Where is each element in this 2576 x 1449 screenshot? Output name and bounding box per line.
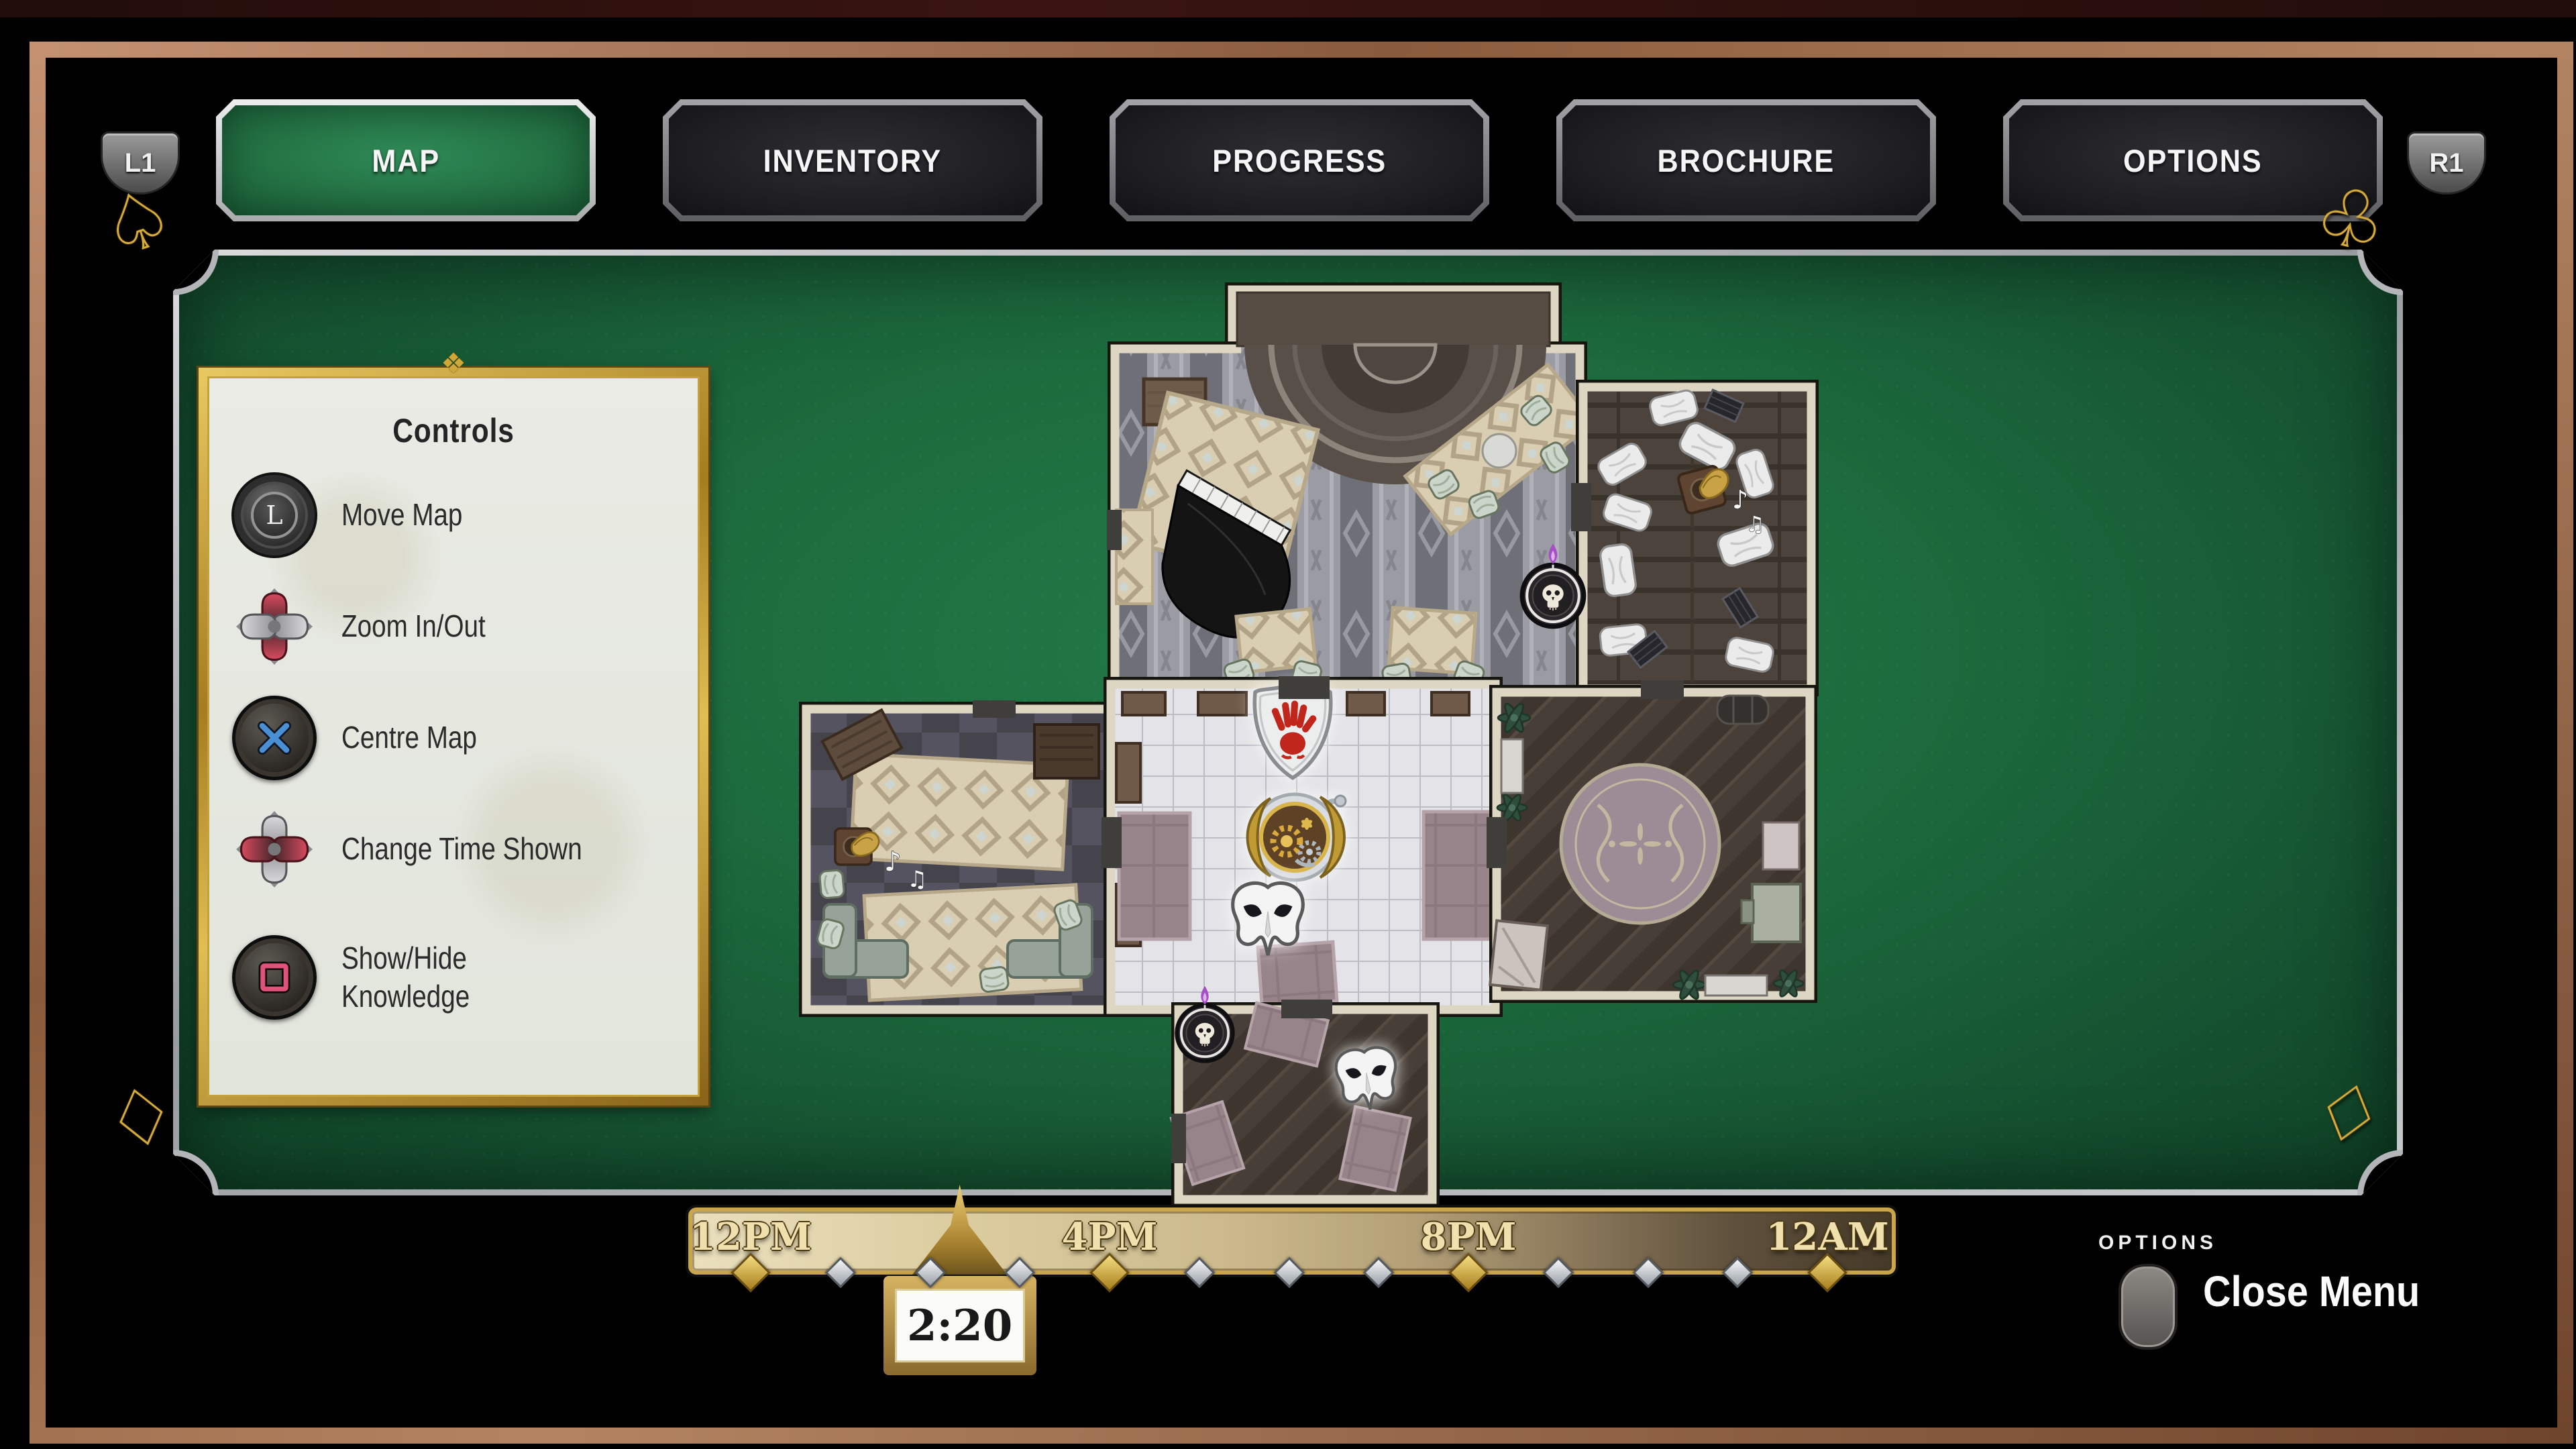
round-rug: [1561, 765, 1719, 923]
side-table: [1763, 822, 1799, 869]
round-table: [1483, 434, 1516, 468]
music-note-icon: ♫: [1746, 511, 1765, 537]
options-button-icon[interactable]: [2118, 1264, 2178, 1350]
tab-brochure-plate: BROCHURE: [1562, 105, 1930, 215]
square-button-icon: [232, 935, 317, 1020]
ballroom-rug-left: [1116, 510, 1152, 604]
scene-top-strip: [0, 0, 2576, 17]
dpad-up-down-icon: [235, 588, 313, 665]
tab-brochure[interactable]: BROCHURE: [1556, 99, 1936, 221]
tab-map-label: MAP: [372, 142, 440, 179]
left-stick-icon: L: [231, 472, 317, 558]
options-button-label: OPTIONS: [2098, 1232, 2192, 1254]
control-label: Zoom In/Out: [341, 607, 606, 646]
current-time-value: 2:20: [907, 1301, 1012, 1351]
lounge-table: [1034, 724, 1099, 778]
room-storage: ♪ ♫: [1583, 387, 1811, 689]
room-central-hall: [1111, 684, 1495, 1010]
room-left-lounge: ♪ ♫: [806, 709, 1110, 1010]
table: [1490, 920, 1548, 989]
barrel: [1717, 696, 1768, 724]
cross-button-icon: [232, 696, 317, 780]
control-row-move-map: L Move Map: [207, 465, 700, 566]
tab-map[interactable]: MAP: [216, 99, 596, 221]
tab-brochure-label: BROCHURE: [1658, 142, 1835, 179]
shoulder-button-r1[interactable]: R1: [2407, 131, 2486, 195]
control-row-knowledge: Show/Hide Knowledge: [207, 910, 700, 1044]
bench: [1501, 739, 1523, 793]
panel-corner-cut: [133, 1156, 213, 1235]
room-round-rug: [1490, 692, 1810, 1001]
music-note-icon: ♪: [884, 847, 902, 877]
mauve-rug: [1424, 812, 1493, 939]
tab-progress-plate: PROGRESS: [1116, 105, 1483, 215]
music-note-icon: ♪: [1732, 485, 1748, 515]
pocket-watch-icon: [1247, 794, 1346, 880]
mauve-rug: [1119, 813, 1190, 939]
tab-map-plate: MAP: [222, 105, 590, 215]
shoulder-r1-label: R1: [2429, 148, 2463, 178]
map-viewport[interactable]: ♪ ♫ ♪ ♫: [771, 282, 1851, 1234]
control-row-zoom: Zoom In/Out: [207, 576, 700, 677]
tab-bar: MAP INVENTORY PROGRESS BROCHURE OPTIONS: [216, 99, 2384, 221]
diamond-ornament-icon: ♢: [97, 1071, 185, 1165]
music-note-icon: ♫: [907, 866, 927, 893]
dpad-left-right-icon: [235, 810, 313, 888]
control-row-centre: Centre Map: [207, 688, 700, 788]
tab-inventory-label: INVENTORY: [763, 142, 942, 179]
close-menu-label: Close Menu: [2203, 1267, 2420, 1316]
control-label: Change Time Shown: [341, 830, 606, 869]
tab-inventory-plate: INVENTORY: [669, 105, 1036, 215]
tab-inventory[interactable]: INVENTORY: [663, 99, 1042, 221]
current-time-box: 2:20: [883, 1276, 1036, 1375]
control-label: Centre Map: [341, 718, 606, 757]
bench: [1705, 975, 1767, 996]
panel-corner-cut: [2363, 1156, 2443, 1235]
gramophone-lounge-icon: [835, 828, 879, 865]
tab-progress-label: PROGRESS: [1212, 142, 1387, 179]
spade-ornament-icon: ♤: [91, 174, 183, 271]
room-ballroom: [1115, 290, 1593, 691]
timeline: 12PM 4PM 8PM 12AM 2:20: [688, 1207, 1896, 1275]
control-label: Move Map: [341, 496, 606, 535]
control-row-time: Change Time Shown: [207, 799, 700, 900]
tab-progress[interactable]: PROGRESS: [1110, 99, 1489, 221]
tab-options-label: OPTIONS: [2123, 142, 2262, 179]
white-mask-icon: [1233, 883, 1303, 955]
stick-letter: L: [266, 500, 282, 530]
controls-panel: Controls L Move Map Zo: [199, 368, 708, 1106]
control-label: Show/Hide Knowledge: [341, 939, 584, 1016]
controls-title: Controls: [244, 411, 663, 450]
